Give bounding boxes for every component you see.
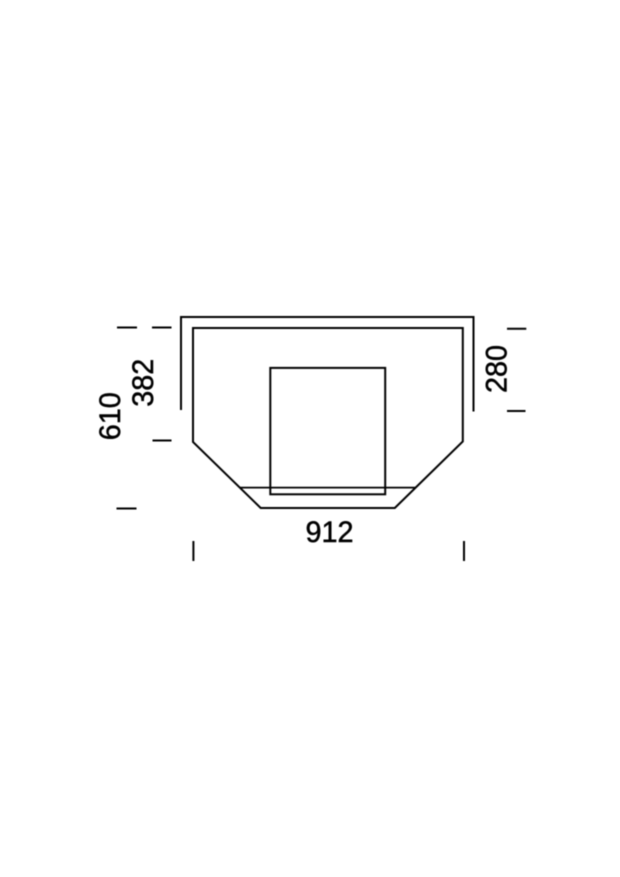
- svg-text:912: 912: [305, 516, 353, 550]
- svg-text:382: 382: [126, 359, 160, 407]
- svg-text:280: 280: [480, 345, 514, 393]
- svg-text:610: 610: [93, 392, 127, 440]
